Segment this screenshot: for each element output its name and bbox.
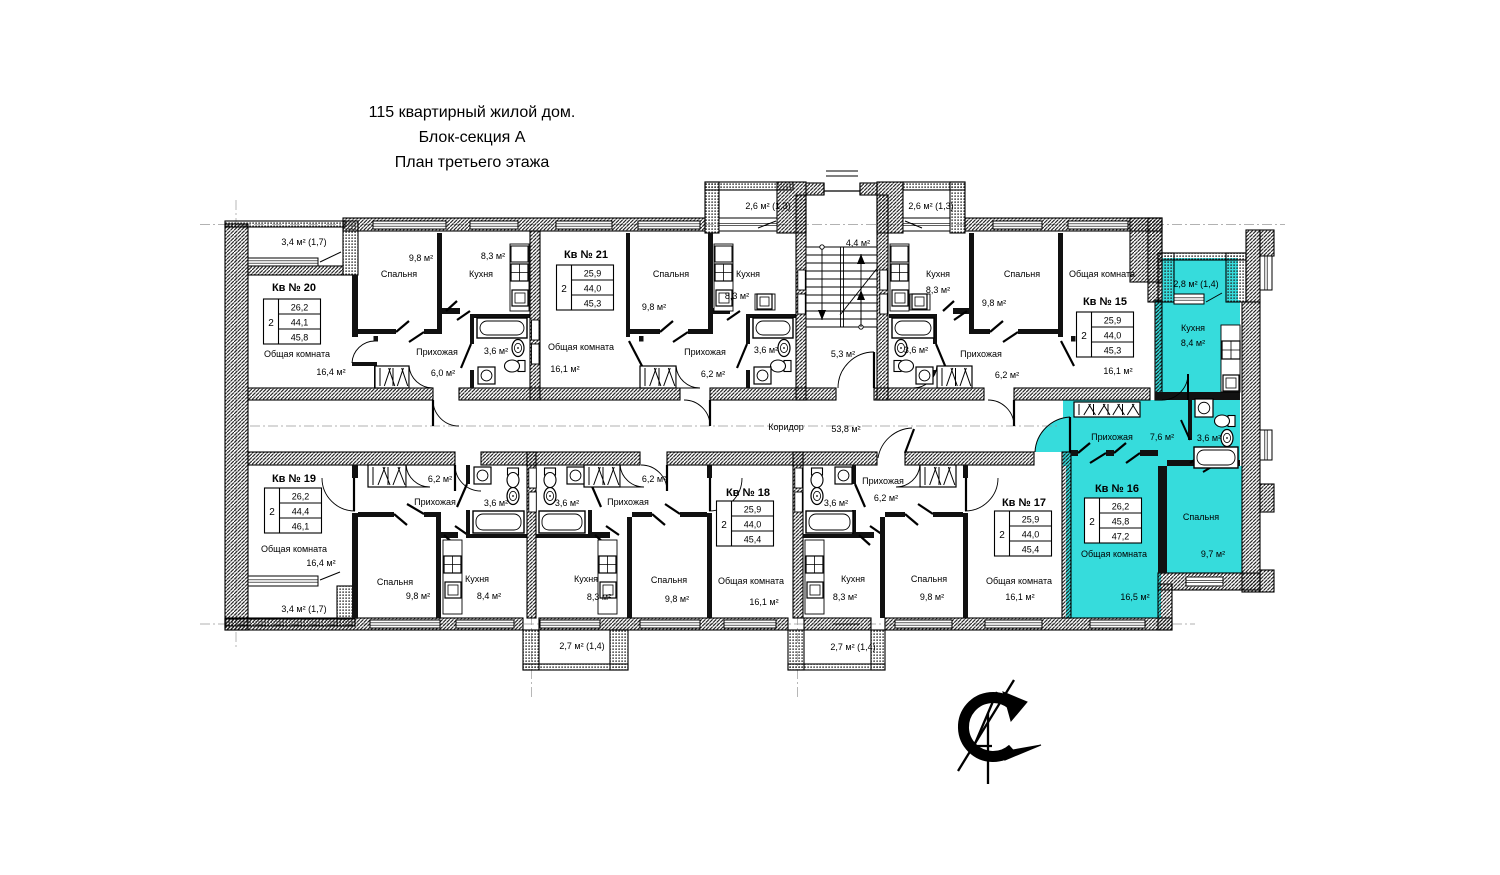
svg-text:9,8 м²: 9,8 м² [920,592,944,602]
svg-text:Спальня: Спальня [381,269,417,279]
svg-text:44,0: 44,0 [744,520,762,530]
svg-text:Общая комната: Общая комната [264,349,330,359]
svg-text:Кухня: Кухня [926,269,950,279]
svg-text:Общая комната: Общая комната [548,342,614,352]
svg-text:Спальня: Спальня [1004,269,1040,279]
svg-text:26,2: 26,2 [291,303,309,313]
svg-text:9,8 м²: 9,8 м² [665,594,689,604]
svg-text:Прихожая: Прихожая [416,347,458,357]
svg-text:9,8 м²: 9,8 м² [642,302,666,312]
svg-text:3,4 м² (1,7): 3,4 м² (1,7) [281,237,326,247]
svg-text:Прихожая: Прихожая [607,497,649,507]
svg-text:Кв № 21: Кв № 21 [564,249,608,261]
svg-text:9,8 м²: 9,8 м² [406,591,430,601]
svg-text:47,2: 47,2 [1112,532,1130,542]
svg-text:46,1: 46,1 [292,522,310,532]
svg-text:16,1 м²: 16,1 м² [550,364,579,374]
svg-text:Кв № 20: Кв № 20 [272,282,316,294]
svg-text:3,6 м²: 3,6 м² [1197,433,1221,443]
svg-text:Прихожая: Прихожая [684,347,726,357]
svg-text:2: 2 [721,520,727,531]
svg-text:7,6 м²: 7,6 м² [1150,432,1174,442]
svg-text:2,6 м² (1,3): 2,6 м² (1,3) [745,201,790,211]
svg-text:44,1: 44,1 [291,318,309,328]
svg-text:8,4 м²: 8,4 м² [477,591,501,601]
svg-text:Прихожая: Прихожая [1091,432,1133,442]
svg-text:Прихожая: Прихожая [414,497,456,507]
svg-text:6,2 м²: 6,2 м² [642,474,666,484]
svg-text:26,2: 26,2 [292,492,310,502]
svg-text:8,3 м²: 8,3 м² [725,291,749,301]
svg-text:8,3 м²: 8,3 м² [481,251,505,261]
svg-text:Блок-секция А: Блок-секция А [419,129,526,146]
svg-text:25,9: 25,9 [584,269,602,279]
svg-text:9,8 м²: 9,8 м² [982,298,1006,308]
svg-text:Кухня: Кухня [841,574,865,584]
svg-text:Общая комната: Общая комната [1081,549,1147,559]
svg-text:Общая комната: Общая комната [261,544,327,554]
svg-text:Общая комната: Общая комната [1069,269,1135,279]
svg-text:53,8 м²: 53,8 м² [831,424,860,434]
svg-text:115 квартирный жилой дом.: 115 квартирный жилой дом. [369,104,576,121]
svg-text:4,4 м²: 4,4 м² [846,238,870,248]
svg-text:Прихожая: Прихожая [960,349,1002,359]
svg-text:5,3 м²: 5,3 м² [831,349,855,359]
svg-text:Коридор: Коридор [768,422,804,432]
svg-text:16,1 м²: 16,1 м² [749,597,778,607]
svg-text:45,3: 45,3 [584,299,602,309]
svg-text:Кв № 18: Кв № 18 [726,487,770,499]
svg-text:6,2 м²: 6,2 м² [995,370,1019,380]
svg-text:8,3 м²: 8,3 м² [926,285,950,295]
svg-text:3,6 м²: 3,6 м² [484,498,508,508]
svg-text:2,6 м² (1,3): 2,6 м² (1,3) [908,201,953,211]
svg-text:Спальня: Спальня [653,269,689,279]
svg-text:16,5 м²: 16,5 м² [1120,592,1149,602]
svg-text:16,1 м²: 16,1 м² [1005,592,1034,602]
svg-text:2,7 м² (1,4): 2,7 м² (1,4) [830,642,875,652]
svg-text:Кухня: Кухня [574,574,598,584]
svg-text:25,9: 25,9 [744,505,762,515]
svg-text:45,3: 45,3 [1104,346,1122,356]
svg-text:44,0: 44,0 [1022,530,1040,540]
svg-text:6,2 м²: 6,2 м² [428,474,452,484]
svg-text:2: 2 [561,284,567,295]
svg-text:45,4: 45,4 [744,535,762,545]
svg-text:2: 2 [999,530,1005,541]
svg-text:2: 2 [1081,331,1087,342]
svg-text:Кв № 16: Кв № 16 [1095,483,1139,495]
svg-text:8,3 м²: 8,3 м² [587,592,611,602]
svg-text:2,8 м² (1,4): 2,8 м² (1,4) [1173,279,1218,289]
svg-text:2: 2 [268,318,274,329]
svg-text:Общая комната: Общая комната [718,576,784,586]
svg-text:Кв № 17: Кв № 17 [1002,497,1046,509]
svg-text:3,6 м²: 3,6 м² [904,345,928,355]
svg-text:9,7 м²: 9,7 м² [1201,549,1225,559]
svg-text:8,3 м²: 8,3 м² [833,592,857,602]
svg-text:2: 2 [269,507,275,518]
svg-text:Спальня: Спальня [377,577,413,587]
svg-text:Кв № 15: Кв № 15 [1083,296,1127,308]
svg-text:Прихожая: Прихожая [862,476,904,486]
svg-text:План третьего этажа: План третьего этажа [395,154,550,171]
svg-text:26,2: 26,2 [1112,502,1130,512]
svg-text:Спальня: Спальня [1183,512,1219,522]
svg-text:Спальня: Спальня [651,575,687,585]
svg-text:6,0 м²: 6,0 м² [431,368,455,378]
svg-text:6,2 м²: 6,2 м² [874,493,898,503]
svg-text:Кухня: Кухня [1181,323,1205,333]
svg-text:Спальня: Спальня [911,574,947,584]
svg-text:Кв № 19: Кв № 19 [272,473,316,485]
svg-text:Общая комната: Общая комната [986,576,1052,586]
svg-text:2,7 м² (1,4): 2,7 м² (1,4) [559,641,604,651]
svg-text:16,4 м²: 16,4 м² [316,367,345,377]
svg-text:Кухня: Кухня [736,269,760,279]
svg-text:25,9: 25,9 [1022,515,1040,525]
svg-text:3,6 м²: 3,6 м² [555,498,579,508]
svg-text:44,0: 44,0 [1104,331,1122,341]
svg-text:3,6 м²: 3,6 м² [824,498,848,508]
svg-text:45,8: 45,8 [1112,517,1130,527]
svg-text:6,2 м²: 6,2 м² [701,369,725,379]
svg-text:3,6 м²: 3,6 м² [754,345,778,355]
svg-text:Кухня: Кухня [469,269,493,279]
svg-text:3,4 м² (1,7): 3,4 м² (1,7) [281,604,326,614]
svg-text:9,8 м²: 9,8 м² [409,253,433,263]
svg-text:25,9: 25,9 [1104,316,1122,326]
svg-text:2: 2 [1089,517,1095,528]
svg-text:Кухня: Кухня [465,574,489,584]
svg-text:16,1 м²: 16,1 м² [1103,366,1132,376]
svg-text:45,8: 45,8 [291,333,309,343]
svg-text:44,0: 44,0 [584,284,602,294]
svg-text:3,6 м²: 3,6 м² [484,346,508,356]
svg-text:8,4 м²: 8,4 м² [1181,338,1205,348]
svg-text:45,4: 45,4 [1022,545,1040,555]
svg-text:16,4 м²: 16,4 м² [306,558,335,568]
svg-text:44,4: 44,4 [292,507,310,517]
